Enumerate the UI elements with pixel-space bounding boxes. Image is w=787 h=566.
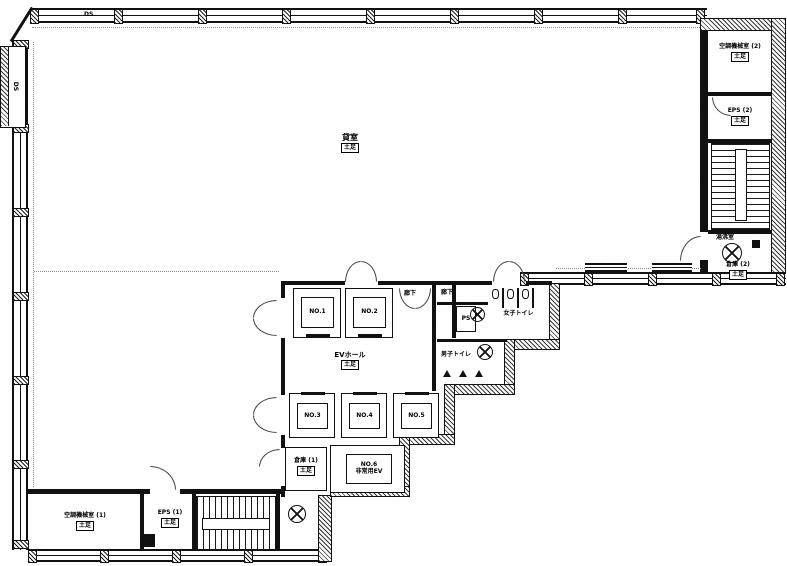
door-arc [680,236,701,261]
ds-label-west: DS [11,82,18,91]
core-west-wall [281,281,285,298]
column [100,550,109,563]
column [172,550,181,563]
column [244,550,253,563]
elevator-label: NO.3 [304,413,320,420]
column [584,273,593,286]
bottom-wing-east-wall [318,495,332,562]
drain-fixture [288,505,306,523]
equipment-block [752,240,760,248]
storage-1-room: 倉庫 (1) 土足 [285,447,327,491]
column [776,273,785,286]
wing-east-wall [771,18,786,285]
eps-2-label: EPS (2) 土足 [710,108,770,126]
women-toilet-room: 女子トイレ [488,285,549,341]
column [13,540,29,549]
elevator-door [301,392,325,395]
pantry-label: 湯沸室 [716,235,734,242]
lobby-east-wall [432,281,436,391]
elevator-car-1: NO.1 [301,297,334,328]
elevator-door [405,392,429,395]
basin-fixture [470,307,485,322]
door-arc [493,261,509,282]
column [13,376,29,385]
elevator-door [306,334,330,337]
machine-room-2-name: 空調機械室 (2) [719,44,761,51]
column [450,9,459,24]
low-partition [652,263,692,272]
elevator-door [358,334,382,337]
stairs-south [196,496,276,550]
emergency-ev-name: 非常用EV [356,469,383,476]
elevator-label: NO.1 [309,309,325,316]
column [366,9,375,24]
column [282,9,291,24]
urinal-fixture [459,370,467,377]
column [13,460,29,469]
floor-plan-sheet: DS DS [0,0,787,566]
elevator-shaft-3: NO.3 [289,393,335,438]
basin-fixture [477,344,493,360]
column [114,9,123,24]
urinal-fixture [475,370,483,377]
column [534,9,543,24]
toilet-fixture [507,289,514,299]
stall-partition [532,288,534,308]
door-arc [253,415,277,433]
urinal-fixture [443,370,451,377]
low-partition [585,263,627,272]
equipment-block [142,534,155,547]
door-arc [259,449,280,467]
door-arc [253,318,277,336]
door-arc [345,261,361,282]
corridor-label: 廊下 [404,291,416,298]
dosoku-tag: 土足 [729,270,747,280]
door-arc [253,300,277,318]
storage-2-label: 倉庫 (2) 土足 [712,262,764,280]
elevator-car-4: NO.4 [349,403,380,429]
ds-duct-shaft: DS [0,46,26,128]
grid-line [34,271,279,272]
column [28,550,37,563]
elevator-shaft-2: NO.2 [345,288,393,338]
tenant-room-name: 貸室 [342,133,358,142]
door-arc [253,397,277,415]
column [13,292,29,301]
emergency-elevator-shaft: NO.6 非常用EV [330,445,405,493]
door-arc [150,466,176,490]
storage-1-label: 倉庫 (1) 土足 [286,458,326,476]
dosoku-tag: 土足 [341,360,359,370]
elevator-shaft-5: NO.5 [393,393,439,438]
machine-room-1-label: 空調機械室 (1) 土足 [50,513,120,531]
column [618,9,627,24]
pantry-sink-fixture [722,243,742,263]
south-wall-bottom-wing [28,549,332,562]
stair-rail [735,149,747,221]
core-west-wall [281,338,285,395]
nw-corner-connector [10,7,34,43]
stair-rail [202,518,270,530]
stall-partition [502,288,504,308]
eps-1-name: EPS (1) [158,510,183,517]
tenant-room-label: 貸室 土足 [320,133,380,153]
dosoku-tag: 土足 [341,143,359,153]
bottom-wing-north-wall [28,489,150,494]
dosoku-tag: 土足 [731,52,749,62]
wing-partition [708,92,771,96]
ev-hall-label: EVホール 土足 [310,351,390,370]
elevator-shaft-1: NO.1 [293,288,341,338]
corridor-label: 廊下 [441,290,453,297]
stairs-east [711,143,770,230]
elevator-car-5: NO.5 [401,403,432,429]
storage-1-name: 倉庫 (1) [294,458,318,465]
wing-west-wall-upper [700,31,708,232]
emergency-elevator-car: NO.6 非常用EV [346,454,392,484]
column [648,273,657,286]
wing-partition [276,493,280,550]
ev-hall-name: EVホール [334,351,365,359]
machine-room-1-name: 空調機械室 (1) [64,513,106,520]
column [198,9,207,24]
toilet-zone-wall [437,302,488,305]
eps-1-label: EPS (1) 土足 [148,510,192,528]
door-arc [415,288,431,309]
ps-label: PS [462,316,471,323]
elevator-label: NO.2 [361,309,377,316]
elevator-car-3: NO.3 [297,403,328,429]
toilet-fixture [492,289,499,299]
dosoku-tag: 土足 [731,116,749,126]
door-arc [361,261,377,282]
toilet-fixture [522,289,529,299]
women-toilet-label: 女子トイレ [488,311,549,318]
stall-partition [517,288,519,308]
men-toilet-room: 男子トイレ [437,343,504,384]
dosoku-tag: 土足 [161,518,179,528]
grid-line [32,27,700,28]
elevator-car-2: NO.2 [353,297,386,328]
door-arc [509,261,525,282]
ds-shaft-wall [1,47,9,126]
men-toilet-label: 男子トイレ [441,352,471,359]
grid-line [33,42,34,487]
core-north-wall [283,281,345,285]
ds-label-top: DS [84,12,93,19]
eps-2-name: EPS (2) [728,108,753,115]
elevator-label: NO.5 [408,413,424,420]
elevator-shaft-4: NO.4 [341,393,387,438]
dosoku-tag: 土足 [76,521,94,531]
storage-2-name: 倉庫 (2) [726,262,750,269]
elevator-label: NO.4 [356,413,372,420]
machine-room-2-label: 空調機械室 (2) 土足 [710,44,770,62]
elevator-door [353,392,377,395]
dosoku-tag: 土足 [297,466,315,476]
core-step-wall [549,283,560,345]
north-wall [30,8,707,23]
column [13,208,29,217]
